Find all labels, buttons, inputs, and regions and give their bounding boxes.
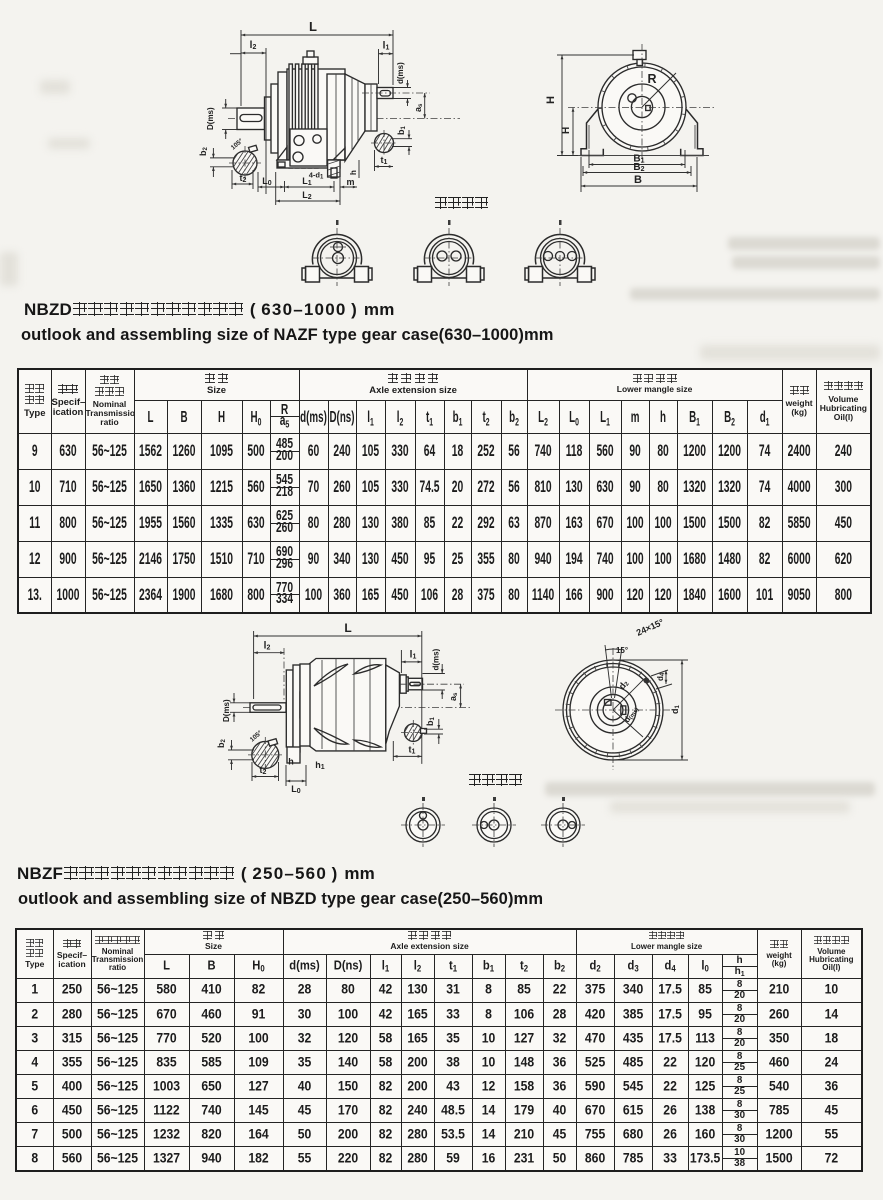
svg-text:b1: b1 <box>425 717 436 727</box>
svg-text:b2: b2 <box>216 739 227 749</box>
svg-text:H: H <box>561 127 572 134</box>
svg-text:D(ms): D(ms) <box>206 107 215 130</box>
svg-text:h: h <box>349 170 358 175</box>
svg-text:m: m <box>346 177 354 187</box>
svg-text:L2: L2 <box>302 190 312 201</box>
svg-text:15°: 15° <box>616 646 628 655</box>
svg-text:D(ms): D(ms) <box>222 699 231 722</box>
svg-text:105°: 105° <box>229 137 245 152</box>
svg-text:L0: L0 <box>291 784 301 795</box>
svg-text:L: L <box>344 621 351 635</box>
svg-text:h: h <box>288 757 294 767</box>
svg-text:h1: h1 <box>315 760 325 771</box>
svg-text:l1: l1 <box>383 41 390 52</box>
svg-text:b1: b1 <box>396 126 407 136</box>
svg-text:24×15°: 24×15° <box>635 618 666 638</box>
svg-text:l2: l2 <box>250 40 257 51</box>
svg-text:4-d1: 4-d1 <box>309 171 324 181</box>
svg-text:L: L <box>309 19 317 34</box>
svg-text:as: as <box>448 692 459 701</box>
svg-text:as: as <box>413 103 424 112</box>
svg-text:B: B <box>634 174 642 186</box>
svg-text:d(ms): d(ms) <box>396 62 405 84</box>
svg-text:d(ms): d(ms) <box>432 648 441 670</box>
svg-text:t1: t1 <box>409 745 416 756</box>
svg-text:L0: L0 <box>262 176 272 187</box>
svg-text:l1: l1 <box>410 650 417 661</box>
svg-text:b2: b2 <box>198 147 209 157</box>
svg-text:H: H <box>545 96 557 104</box>
svg-text:d1: d1 <box>670 705 681 715</box>
svg-text:R: R <box>647 72 656 86</box>
svg-text:l2: l2 <box>264 641 271 652</box>
svg-text:t1: t1 <box>381 155 388 166</box>
